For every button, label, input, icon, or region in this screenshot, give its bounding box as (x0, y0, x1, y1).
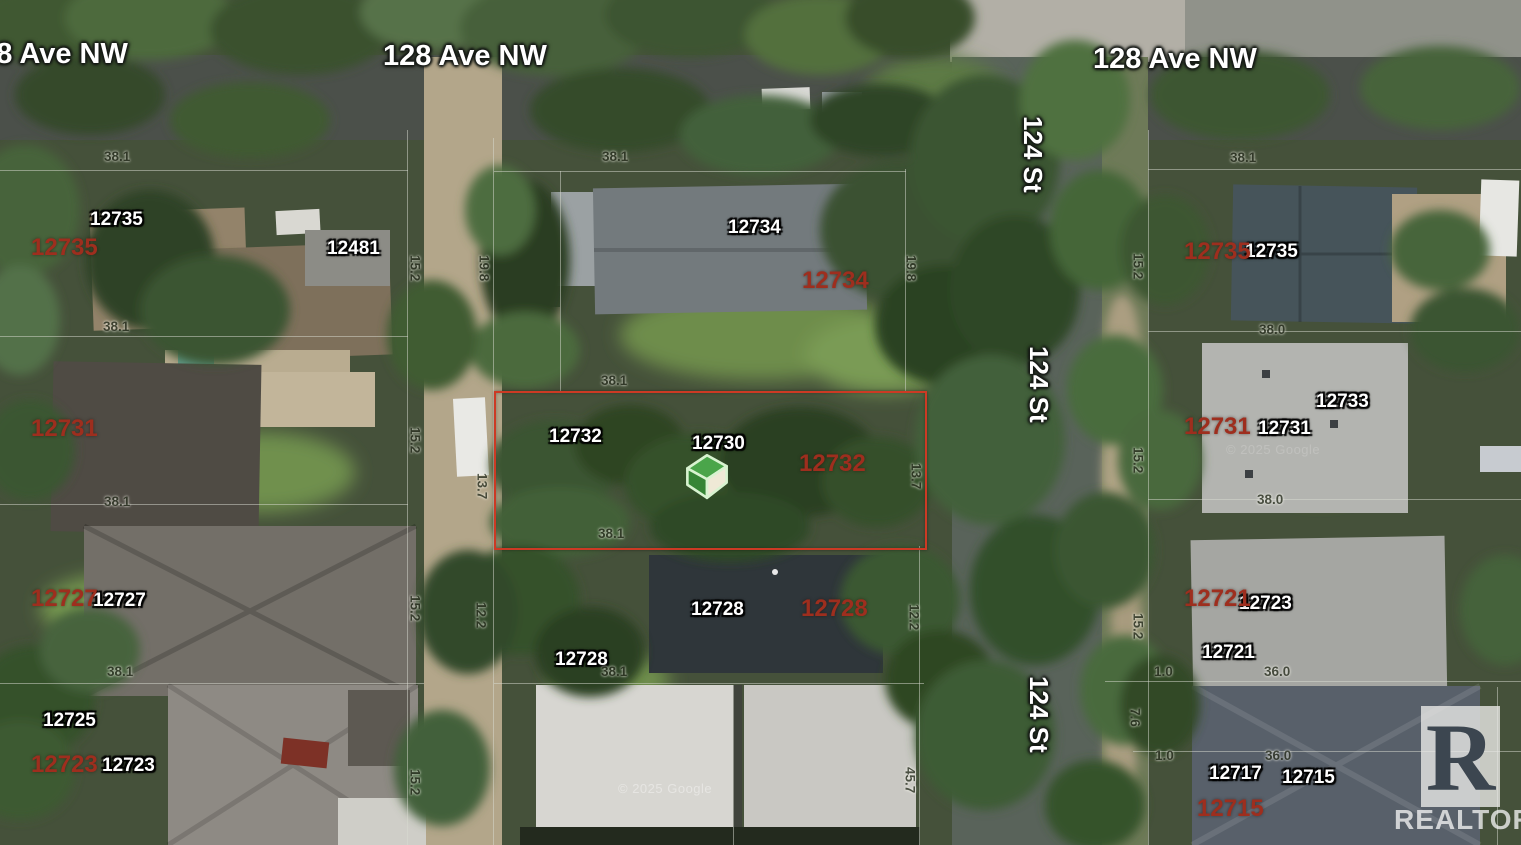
realtor-wordmark: REALTOR® (1394, 804, 1521, 836)
satellite-map[interactable]: 128 Ave NW128 Ave NW128 Ave NW124 St124 … (0, 0, 1521, 845)
realtor-logo: R (1421, 706, 1500, 807)
subject-home-marker[interactable] (684, 452, 730, 500)
realtor-logo-letter: R (1426, 716, 1495, 800)
